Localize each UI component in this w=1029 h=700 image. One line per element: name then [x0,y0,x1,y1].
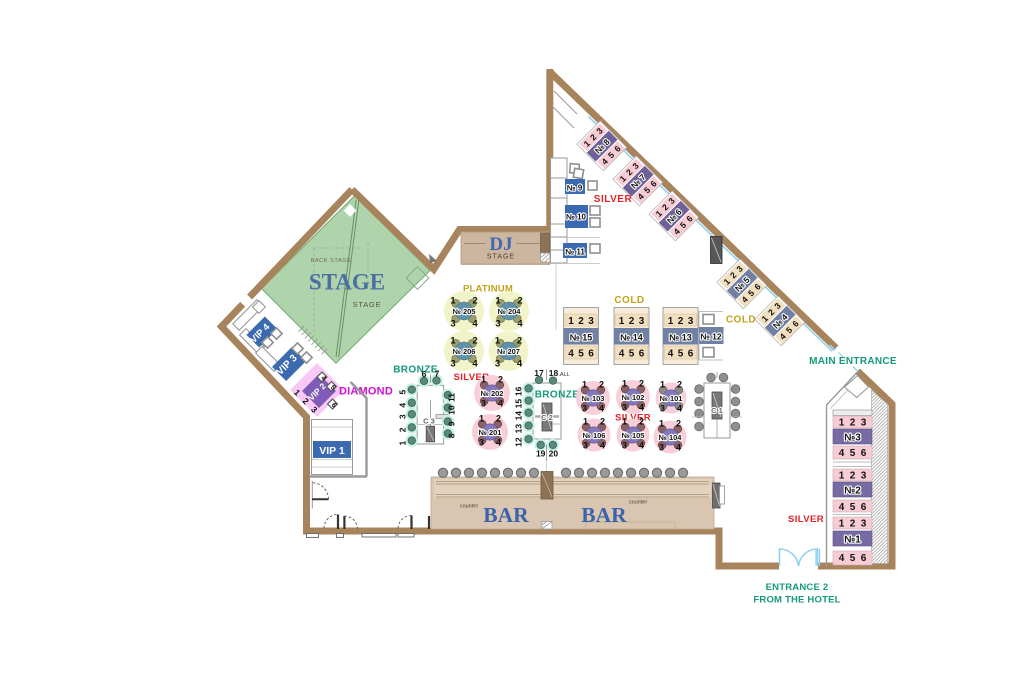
svg-text:BRONZE: BRONZE [393,365,438,376]
svg-text:1: 1 [619,316,625,327]
svg-text:3: 3 [861,471,867,482]
svg-text:5: 5 [850,448,856,459]
svg-text:№ 11: № 11 [565,248,585,257]
svg-text:4: 4 [496,438,501,448]
svg-text:3: 3 [582,404,587,414]
svg-text:DJ: DJ [489,234,512,255]
svg-text:COLD: COLD [726,315,756,326]
svg-text:11: 11 [447,393,457,402]
svg-text:№ 202: № 202 [481,389,504,398]
svg-text:3: 3 [588,316,594,327]
svg-text:2: 2 [517,296,522,307]
svg-text:№ 14: № 14 [620,332,643,342]
svg-text:6: 6 [861,502,867,513]
svg-text:FROM THE HOTEL: FROM THE HOTEL [753,595,840,606]
svg-text:5: 5 [578,348,584,359]
svg-text:4: 4 [517,359,523,370]
svg-text:14: 14 [514,411,524,421]
svg-text:COLD: COLD [614,295,644,306]
svg-text:4: 4 [498,399,503,409]
svg-text:3: 3 [481,399,486,409]
svg-text:15: 15 [514,399,524,409]
svg-text:BACK STAGE: BACK STAGE [311,258,352,264]
svg-text:5: 5 [398,389,408,394]
svg-text:1: 1 [839,519,845,530]
svg-text:№ 101: № 101 [660,394,683,403]
svg-text:2: 2 [850,418,856,429]
svg-text:8: 8 [447,433,457,438]
svg-text:2: 2 [599,380,604,390]
svg-text:5: 5 [629,348,635,359]
svg-text:3: 3 [861,519,867,530]
svg-text:2: 2 [472,296,477,307]
svg-text:2: 2 [398,427,408,432]
svg-text:5: 5 [678,348,684,359]
svg-text:2: 2 [600,417,605,427]
svg-text:4: 4 [472,359,478,370]
svg-text:№ 13: № 13 [669,332,692,342]
svg-text:3: 3 [659,443,664,453]
svg-text:2: 2 [677,380,682,390]
svg-text:№ 103: № 103 [582,394,605,403]
svg-text:1: 1 [622,379,627,389]
svg-text:SILVER: SILVER [594,194,633,205]
svg-text:4: 4 [398,403,408,408]
svg-text:4: 4 [639,441,644,451]
svg-text:C 3: C 3 [423,417,435,426]
svg-text:4: 4 [472,319,478,330]
svg-text:2: 2 [639,417,644,427]
svg-text:6: 6 [422,369,427,379]
svg-text:3: 3 [622,441,627,451]
svg-text:12: 12 [514,437,524,447]
svg-text:1: 1 [659,419,664,429]
svg-text:2: 2 [639,379,644,389]
svg-text:4: 4 [668,348,674,359]
svg-text:STAGE: STAGE [353,300,382,309]
svg-text:3: 3 [861,418,867,429]
svg-text:№ 207: № 207 [497,347,520,356]
svg-text:2: 2 [678,316,684,327]
svg-text:№ 102: № 102 [622,393,645,402]
svg-text:VIP 1: VIP 1 [319,445,345,457]
svg-text:19: 19 [536,449,546,459]
svg-text:№ 105: № 105 [622,431,645,440]
svg-text:6: 6 [861,553,867,564]
svg-text:№ 205: № 205 [453,307,476,316]
svg-text:№ 204: № 204 [498,307,522,316]
svg-text:№1: №1 [844,535,861,546]
svg-text:1: 1 [668,316,674,327]
svg-text:3: 3 [495,319,500,330]
svg-text:2: 2 [629,316,635,327]
svg-text:№ 12: № 12 [700,332,722,342]
svg-text:18: 18 [549,368,559,378]
svg-text:4: 4 [639,403,644,413]
svg-text:C 2: C 2 [541,413,553,422]
svg-text:5: 5 [850,502,856,513]
svg-text:4: 4 [839,448,845,459]
svg-text:2: 2 [676,419,681,429]
svg-text:4: 4 [839,502,845,513]
svg-text:DIAMOND: DIAMOND [339,386,393,398]
svg-text:№ 206: № 206 [453,347,476,356]
svg-text:4: 4 [568,348,574,359]
svg-text:1: 1 [839,418,845,429]
svg-text:3: 3 [639,316,645,327]
svg-text:№3: №3 [844,433,861,444]
svg-text:4: 4 [599,404,604,414]
svg-text:7: 7 [435,369,440,379]
svg-text:№2: №2 [844,486,861,497]
svg-text:BRONZE: BRONZE [535,390,580,401]
svg-text:4: 4 [839,553,845,564]
svg-text:3: 3 [450,319,455,330]
svg-text:3: 3 [660,404,665,414]
svg-text:№ 201: № 201 [479,428,502,437]
svg-text:3: 3 [398,414,408,419]
svg-text:16: 16 [514,386,524,396]
svg-text:4: 4 [677,404,682,414]
svg-text:13: 13 [514,424,524,434]
svg-text:1: 1 [398,440,408,445]
svg-text:3: 3 [583,441,588,451]
svg-text:C 1: C 1 [711,406,723,415]
svg-text:SILVER: SILVER [788,514,824,525]
svg-text:STAGE: STAGE [487,254,515,261]
svg-text:STAGE: STAGE [309,270,385,295]
svg-text:2: 2 [472,336,477,347]
svg-text:1: 1 [622,417,627,427]
svg-text:6: 6 [861,448,867,459]
svg-text:5: 5 [850,553,856,564]
svg-text:2: 2 [496,414,501,424]
svg-text:№ 104: № 104 [659,433,683,442]
svg-text:3: 3 [688,316,694,327]
svg-text:1: 1 [495,336,501,347]
svg-text:counter: counter [629,500,648,506]
svg-text:3: 3 [479,438,484,448]
svg-text:2: 2 [517,336,522,347]
svg-text:BAR: BAR [581,503,627,527]
svg-text:.ALL: .ALL [558,372,569,378]
svg-text:1: 1 [568,316,574,327]
svg-text:17: 17 [534,368,544,378]
svg-text:1: 1 [583,417,588,427]
svg-text:4: 4 [517,319,523,330]
svg-text:1: 1 [481,375,486,385]
svg-text:4: 4 [676,443,681,453]
svg-text:1: 1 [839,471,845,482]
svg-text:6: 6 [588,348,594,359]
svg-text:2: 2 [498,375,503,385]
svg-text:1: 1 [450,296,456,307]
svg-text:MAIN ENTRANCE: MAIN ENTRANCE [809,356,897,367]
svg-text:3: 3 [495,359,500,370]
svg-text:10: 10 [447,405,457,415]
svg-text:ENTRANCE 2: ENTRANCE 2 [766,582,829,593]
svg-text:№ 9: № 9 [567,184,583,193]
svg-text:4: 4 [619,348,625,359]
svg-text:3: 3 [450,359,455,370]
svg-text:№ 15: № 15 [570,332,593,342]
svg-text:1: 1 [660,380,665,390]
svg-text:2: 2 [850,471,856,482]
svg-text:1: 1 [479,414,484,424]
svg-text:1: 1 [450,336,456,347]
svg-text:counter: counter [460,504,479,510]
svg-text:4: 4 [600,441,605,451]
svg-text:№ 10: № 10 [566,213,587,222]
svg-text:BAR: BAR [483,503,529,527]
svg-text:2: 2 [850,519,856,530]
svg-text:6: 6 [639,348,645,359]
svg-text:3: 3 [622,403,627,413]
svg-text:№ 106: № 106 [583,431,606,440]
svg-text:2: 2 [578,316,584,327]
svg-text:1: 1 [495,296,501,307]
svg-text:20: 20 [549,449,559,459]
svg-text:6: 6 [688,348,694,359]
svg-text:9: 9 [447,421,457,426]
svg-text:1: 1 [582,380,587,390]
